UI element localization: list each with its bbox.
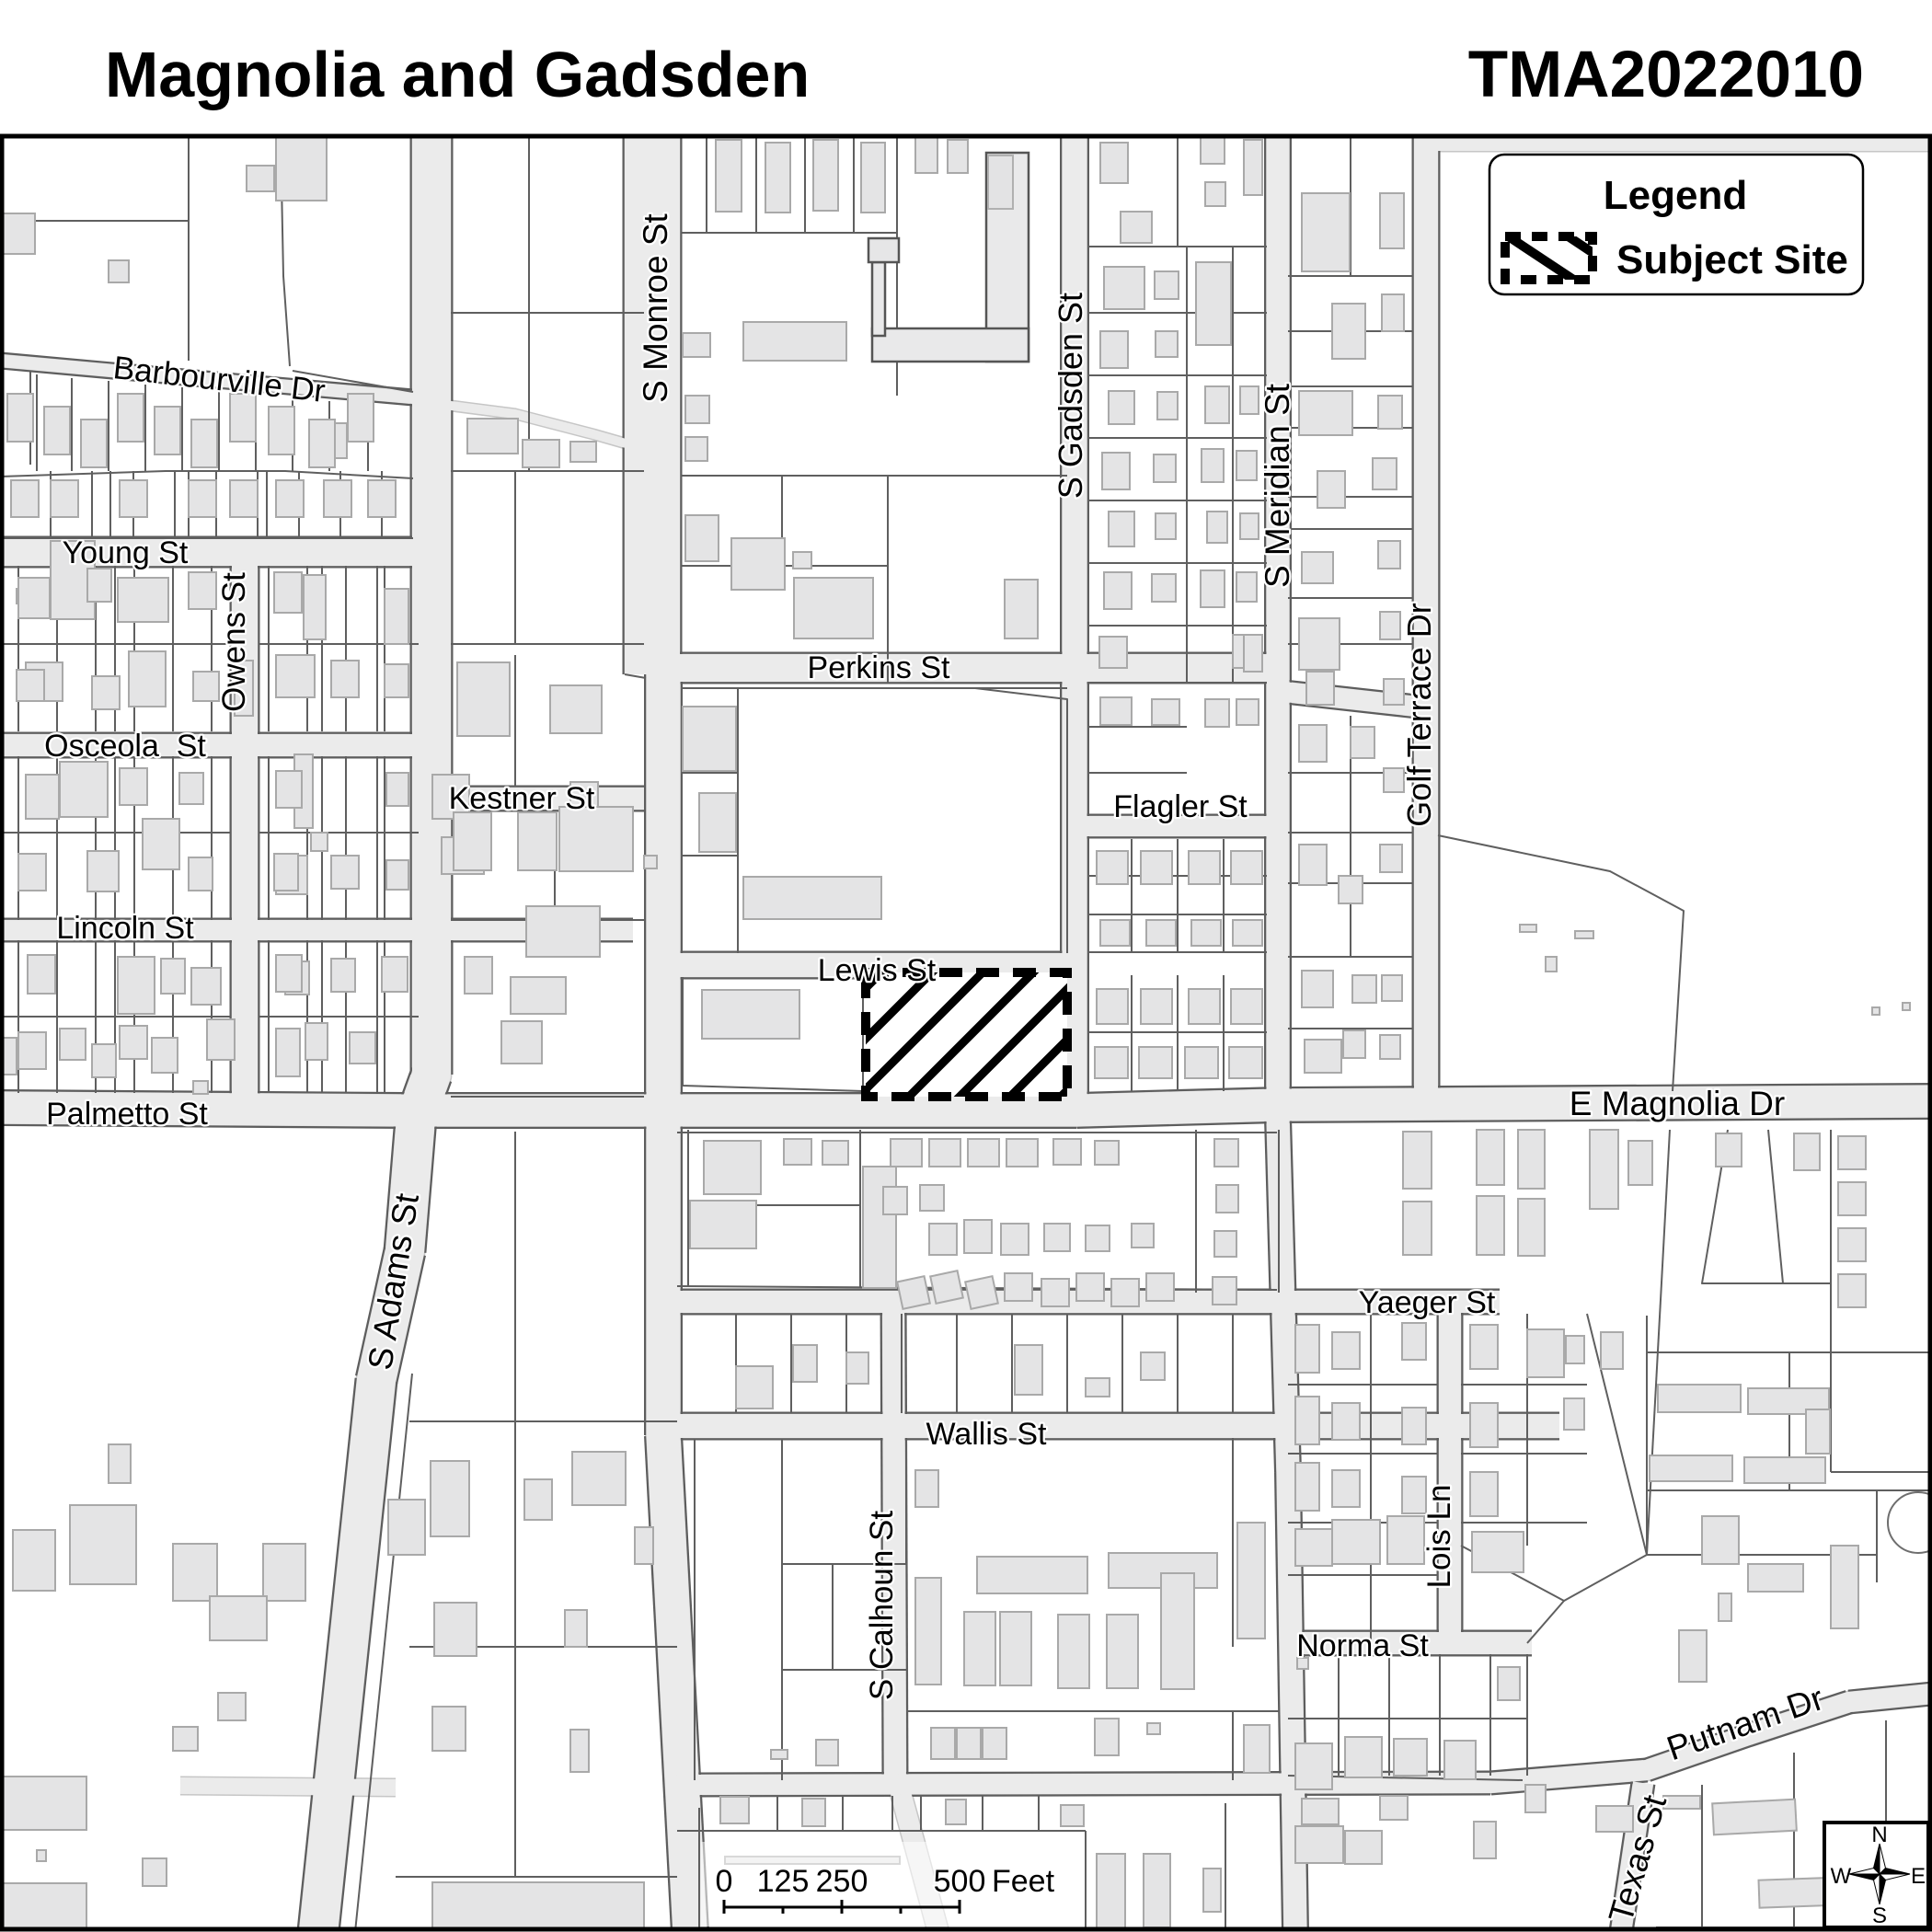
svg-text:Owens St: Owens St xyxy=(216,572,252,712)
svg-text:S Calhoun St: S Calhoun St xyxy=(864,1511,900,1701)
svg-text:Lewis St: Lewis St xyxy=(818,953,937,988)
svg-text:Wallis St: Wallis St xyxy=(926,1417,1048,1452)
svg-text:500: 500 xyxy=(934,1864,986,1899)
svg-text:Golf Terrace Dr: Golf Terrace Dr xyxy=(1400,603,1438,826)
svg-text:N: N xyxy=(1871,1823,1887,1847)
svg-text:TMA2022010: TMA2022010 xyxy=(1468,39,1864,111)
svg-text:Magnolia and Gadsden: Magnolia and Gadsden xyxy=(105,39,810,110)
svg-text:Flagler St: Flagler St xyxy=(1113,789,1248,824)
svg-text:Palmetto St: Palmetto St xyxy=(46,1097,208,1132)
svg-text:E: E xyxy=(1911,1864,1926,1889)
svg-text:250: 250 xyxy=(816,1864,868,1899)
svg-text:S Meridian St: S Meridian St xyxy=(1259,383,1296,588)
svg-text:Feet: Feet xyxy=(992,1864,1055,1899)
svg-text:S Gadsden St: S Gadsden St xyxy=(1052,293,1089,499)
svg-text:Young St: Young St xyxy=(63,535,189,570)
svg-text:S Monroe St: S Monroe St xyxy=(637,213,674,402)
svg-text:Lincoln St: Lincoln St xyxy=(56,911,194,946)
svg-text:Subject Site: Subject Site xyxy=(1616,237,1848,282)
svg-text:0: 0 xyxy=(716,1864,733,1899)
svg-text:S: S xyxy=(1872,1903,1887,1928)
svg-text:Norma St: Norma St xyxy=(1296,1628,1429,1663)
svg-text:125: 125 xyxy=(757,1864,810,1899)
svg-text:Legend: Legend xyxy=(1604,173,1747,218)
svg-text:Lois Ln: Lois Ln xyxy=(1421,1485,1457,1589)
svg-text:Yaeger St: Yaeger St xyxy=(1359,1285,1496,1320)
svg-text:W: W xyxy=(1831,1864,1852,1889)
svg-text:Perkins St: Perkins St xyxy=(808,650,950,685)
svg-text:E Magnolia Dr: E Magnolia Dr xyxy=(1570,1085,1785,1122)
svg-text:Kestner St: Kestner St xyxy=(449,781,595,816)
svg-text:Osceola St: Osceola St xyxy=(44,729,206,764)
